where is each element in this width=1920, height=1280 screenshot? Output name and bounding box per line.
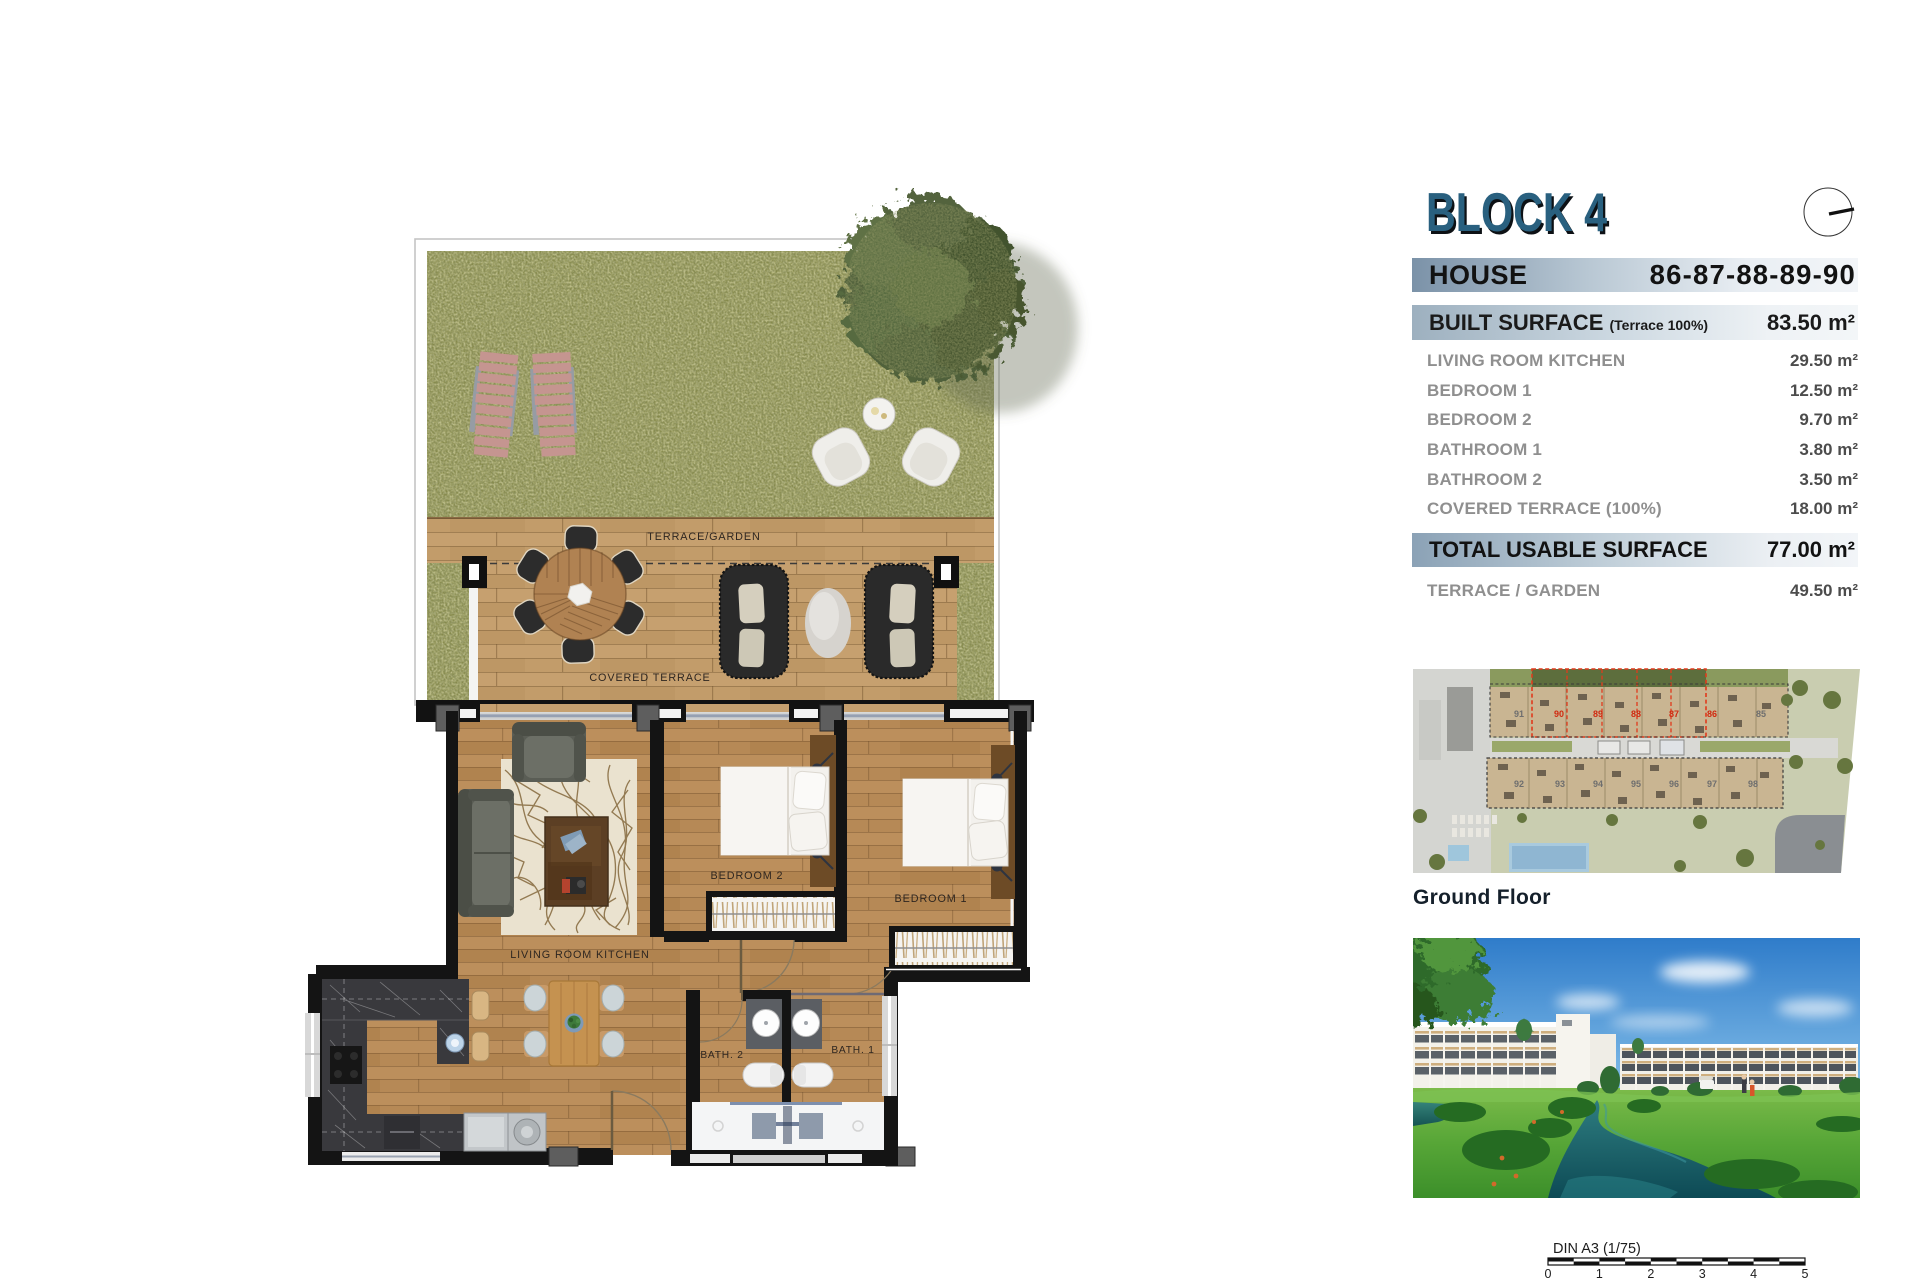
svg-text:96: 96 <box>1669 779 1679 789</box>
svg-text:97: 97 <box>1707 779 1717 789</box>
svg-text:4: 4 <box>1750 1267 1757 1280</box>
svg-text:BEDROOM 2: BEDROOM 2 <box>711 870 784 882</box>
svg-text:BATH. 1: BATH. 1 <box>831 1045 874 1056</box>
svg-text:COVERED TERRACE: COVERED TERRACE <box>589 672 710 684</box>
svg-text:88: 88 <box>1631 709 1641 719</box>
svg-text:95: 95 <box>1631 779 1641 789</box>
svg-text:LIVING ROOM KITCHEN: LIVING ROOM KITCHEN <box>510 949 649 961</box>
svg-text:BEDROOM 1: BEDROOM 1 <box>895 893 968 905</box>
svg-text:DIN A3 (1/75): DIN A3 (1/75) <box>1553 1241 1641 1257</box>
svg-text:92: 92 <box>1514 779 1524 789</box>
svg-text:89: 89 <box>1593 709 1603 719</box>
svg-text:93: 93 <box>1555 779 1565 789</box>
svg-text:5: 5 <box>1802 1267 1809 1280</box>
svg-text:0: 0 <box>1545 1267 1552 1280</box>
svg-text:94: 94 <box>1593 779 1603 789</box>
svg-text:91: 91 <box>1514 709 1524 719</box>
svg-text:98: 98 <box>1748 779 1758 789</box>
svg-text:TERRACE/GARDEN: TERRACE/GARDEN <box>647 531 760 543</box>
svg-text:86: 86 <box>1707 709 1717 719</box>
svg-text:87: 87 <box>1669 709 1679 719</box>
svg-text:90: 90 <box>1554 709 1564 719</box>
svg-text:85: 85 <box>1756 709 1766 719</box>
svg-text:2: 2 <box>1647 1267 1654 1280</box>
svg-text:1: 1 <box>1596 1267 1603 1280</box>
svg-text:3: 3 <box>1699 1267 1706 1280</box>
svg-text:BATH. 2: BATH. 2 <box>700 1050 743 1061</box>
